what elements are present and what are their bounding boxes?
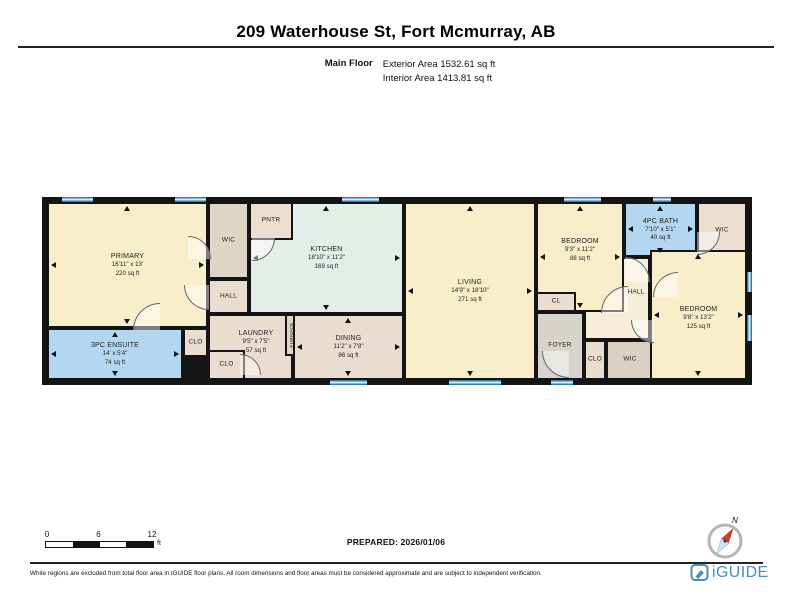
window xyxy=(747,272,752,292)
room-dim: 16'11" x 13' xyxy=(111,261,144,269)
compass-north-label: N xyxy=(732,516,738,525)
window xyxy=(747,315,752,341)
window xyxy=(653,197,671,202)
room-name: HALL xyxy=(220,292,237,301)
dimension-arrow-left xyxy=(654,312,659,318)
dimension-arrow-right xyxy=(395,344,400,350)
room-dim: 18'10" x 11'2" xyxy=(308,254,345,262)
room-name: BEDROOM xyxy=(680,305,718,314)
room-label-furnace: FURNACE xyxy=(290,322,296,347)
dimension-arrow-up xyxy=(657,206,663,211)
room-dim: 14' x 5'4" xyxy=(91,350,139,358)
dimension-arrow-right xyxy=(738,312,743,318)
room-area: 57 sq ft xyxy=(239,347,274,355)
room-label-clo-1: CLO xyxy=(189,338,203,347)
header-divider xyxy=(18,46,774,48)
interior-area: Interior Area 1413.81 sq ft xyxy=(383,72,495,86)
dimension-arrow-left xyxy=(628,226,633,232)
room-label-primary: PRIMARY16'11" x 13'220 sq ft xyxy=(111,252,144,278)
floor-areas: Exterior Area 1532.61 sq ft Interior Are… xyxy=(383,58,495,87)
room-label-wic-rb: WIC xyxy=(623,356,636,365)
dimension-arrow-down xyxy=(124,319,130,324)
room-area: 169 sq ft xyxy=(308,263,345,271)
dimension-arrow-left xyxy=(51,262,56,268)
room-label-hall-right: HALL xyxy=(627,289,644,298)
room-area: 74 sq ft xyxy=(91,359,139,367)
room-dim: 11'2" x 7'8" xyxy=(333,343,363,351)
room-label-bath: 4PC BATH7'10" x 5'1"40 sq ft xyxy=(643,216,678,242)
room-label-hall-left: HALL xyxy=(220,292,237,301)
room-label-living: LIVING14'9" x 18'10"271 sq ft xyxy=(451,278,488,304)
dimension-arrow-down xyxy=(323,305,329,310)
window xyxy=(62,197,93,202)
room-name: 3PC ENSUITE xyxy=(91,341,139,350)
window xyxy=(330,380,367,385)
room-area: 220 sq ft xyxy=(111,270,144,278)
dimension-arrow-down xyxy=(112,371,118,376)
dimension-arrow-left xyxy=(51,351,56,357)
room-name: LAUNDRY xyxy=(239,329,274,338)
room-name: CL xyxy=(552,298,561,307)
window xyxy=(342,197,379,202)
room-label-dining: DINING11'2" x 7'8"86 sq ft xyxy=(333,334,363,360)
room-label-bedroom-1: BEDROOM9'3" x 11'2"88 sq ft xyxy=(561,237,599,263)
brand-name: iGUIDE xyxy=(712,564,769,582)
window xyxy=(449,380,501,385)
dimension-arrow-up xyxy=(112,332,118,337)
dimension-arrow-up xyxy=(577,206,583,211)
floor-label: Main Floor xyxy=(325,58,373,87)
room-name: 4PC BATH xyxy=(643,216,678,225)
dimension-arrow-up xyxy=(124,206,130,211)
dimension-arrow-down xyxy=(657,248,663,253)
room-name: DINING xyxy=(333,334,363,343)
room-name: KITCHEN xyxy=(308,245,345,254)
dimension-arrow-down xyxy=(695,371,701,376)
dimension-arrow-right xyxy=(174,351,179,357)
dimension-arrow-up xyxy=(345,318,351,323)
room-label-bedroom-2: BEDROOM9'8" x 13'2"125 sq ft xyxy=(680,305,718,331)
room-dim: 9'3" x 11'2" xyxy=(561,246,599,254)
floor-plan: HALLKITCHEN18'10" x 11'2"169 sq ftPNTRPR… xyxy=(42,197,752,385)
prepared-date: PREPARED: 2026/01/06 xyxy=(0,537,792,547)
iguide-pen-icon xyxy=(690,563,710,582)
brand-logo: iGUIDE xyxy=(690,563,769,582)
room-name: FURNACE xyxy=(290,322,296,347)
dimension-arrow-down xyxy=(577,303,583,308)
dimension-arrow-left xyxy=(540,254,545,260)
room-name: LIVING xyxy=(451,278,488,287)
room-name: CLO xyxy=(220,361,234,370)
room-label-ensuite: 3PC ENSUITE14' x 5'4"74 sq ft xyxy=(91,341,139,367)
room-name: HALL xyxy=(627,289,644,298)
room-name: FOYER xyxy=(548,342,571,351)
footer-disclaimer: White regions are excluded from total fl… xyxy=(30,570,650,577)
room-label-kitchen: KITCHEN18'10" x 11'2"169 sq ft xyxy=(308,245,345,271)
room-dim: 14'9" x 18'10" xyxy=(451,287,488,295)
room-chase xyxy=(183,357,208,380)
floor-plan-page: 209 Waterhouse St, Fort Mcmurray, AB Mai… xyxy=(0,0,792,612)
room-label-foyer: FOYER xyxy=(548,342,571,351)
dimension-arrow-up xyxy=(323,206,329,211)
dimension-arrow-right xyxy=(199,262,204,268)
dimension-arrow-right xyxy=(395,255,400,261)
room-label-wic-tr: WIC xyxy=(715,227,728,236)
room-label-pntr: PNTR xyxy=(262,217,281,226)
room-name: PNTR xyxy=(262,217,281,226)
dimension-arrow-right xyxy=(615,254,620,260)
room-area: 88 sq ft xyxy=(561,255,599,263)
room-label-laundry: LAUNDRY9'5" x 7'5"57 sq ft xyxy=(239,329,274,355)
room-label-cl: CL xyxy=(552,298,561,307)
footer-divider xyxy=(30,562,763,564)
dimension-arrow-down xyxy=(467,371,473,376)
compass-icon: N xyxy=(702,513,750,563)
room-area: 125 sq ft xyxy=(680,323,718,331)
room-name: CLO xyxy=(189,338,203,347)
floor-summary: Main Floor Exterior Area 1532.61 sq ft I… xyxy=(14,58,792,87)
dimension-arrow-left xyxy=(408,288,413,294)
room-name: BEDROOM xyxy=(561,237,599,246)
dimension-arrow-right xyxy=(688,226,693,232)
room-label-clo-3: CLO xyxy=(588,356,602,365)
room-dim: 9'5" x 7'5" xyxy=(239,338,274,346)
room-dim: 7'10" x 5'1" xyxy=(643,226,678,234)
room-name: CLO xyxy=(588,356,602,365)
dimension-arrow-down xyxy=(345,371,351,376)
room-label-clo-2: CLO xyxy=(220,361,234,370)
dimension-arrow-left xyxy=(297,344,302,350)
window xyxy=(175,197,206,202)
window xyxy=(551,380,573,385)
room-name: WIC xyxy=(715,227,728,236)
room-area: 40 sq ft xyxy=(643,234,678,242)
exterior-area: Exterior Area 1532.61 sq ft xyxy=(383,58,495,72)
room-name: WIC xyxy=(623,356,636,365)
room-area: 86 sq ft xyxy=(333,352,363,360)
room-name: WIC xyxy=(222,236,235,245)
dimension-arrow-up xyxy=(467,206,473,211)
room-dim: 9'8" x 13'2" xyxy=(680,314,718,322)
page-title: 209 Waterhouse St, Fort Mcmurray, AB xyxy=(0,22,792,42)
dimension-arrow-right xyxy=(527,288,532,294)
room-area: 271 sq ft xyxy=(451,296,488,304)
window xyxy=(564,197,601,202)
room-label-wic-left: WIC xyxy=(222,236,235,245)
room-name: PRIMARY xyxy=(111,252,144,261)
